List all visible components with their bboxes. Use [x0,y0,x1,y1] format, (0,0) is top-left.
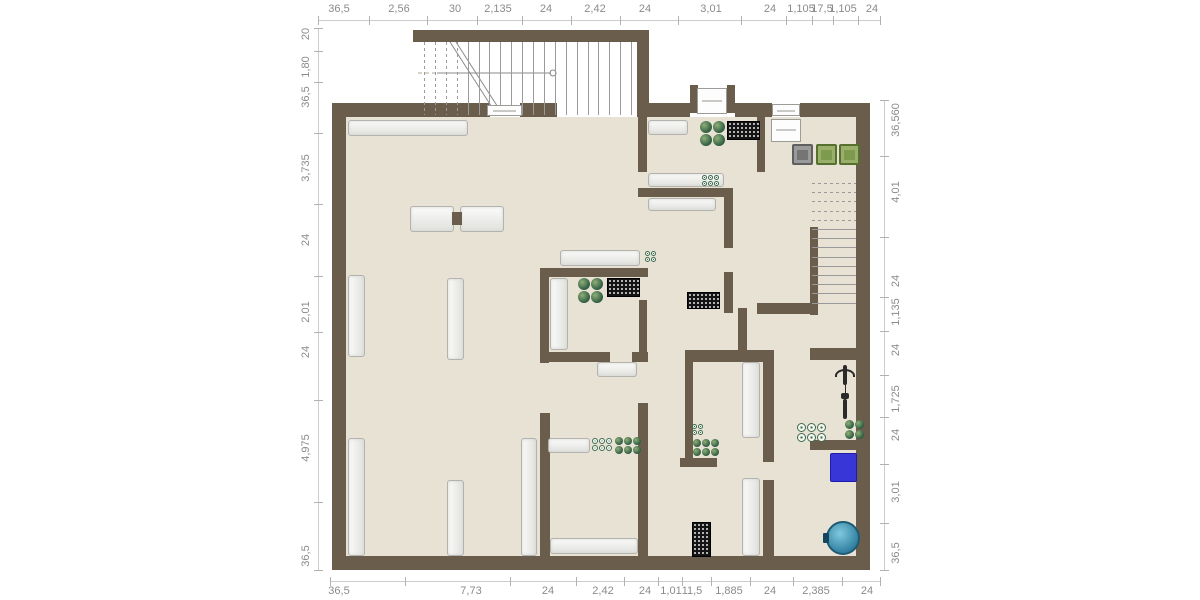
staircase-tread [522,42,523,115]
dimension-label: 24 [890,344,902,356]
staircase-tread [812,303,856,304]
dimension-label: 24 [542,585,554,597]
plant-icon [817,433,826,442]
dimension-tick [880,237,889,238]
dimension-label: 4,975 [300,434,312,462]
wall [724,272,733,313]
plant-icon [692,424,697,429]
door-fixture [487,105,522,116]
shelf-island-link [452,212,462,225]
plant-icon [592,445,598,451]
dimension-line [318,20,880,21]
chair-icon [816,144,837,165]
boiler-tank [830,453,857,482]
dimension-tick [369,16,370,25]
bicycle-handlebar [835,369,855,377]
dimension-tick [522,16,523,25]
plant-icon [633,437,641,445]
wall [540,268,648,277]
wall [413,30,649,42]
dimension-label: 1,01 [660,585,681,597]
plant-icon [700,134,712,146]
dimension-label: 1,725 [890,385,902,413]
dimension-label: 36,5 [300,86,312,107]
wall [332,103,490,117]
dimension-label: 24 [540,3,552,15]
staircase-tread [598,42,599,115]
plant-icon [708,181,713,186]
plant-icon [693,439,701,447]
dimension-label: 24 [300,346,312,358]
staircase-tread [588,42,589,115]
dimension-tick [314,82,323,83]
dimension-tick [314,502,323,503]
dimension-label: 24 [861,585,873,597]
dimension-label: 24 [764,585,776,597]
dimension-tick [880,577,881,586]
wall [632,352,648,362]
staircase-tread [566,42,567,115]
dimension-tick [858,16,859,25]
staircase-tread [812,275,856,276]
plant-icon [807,423,816,432]
dimension-tick [620,16,621,25]
plant-icon [592,438,598,444]
dimension-label: 24 [890,429,902,441]
dimension-label: 1,885 [715,585,743,597]
dimension-label: 2,01 [300,301,312,322]
plant-icon [713,134,725,146]
dimension-tick [624,577,625,586]
staircase-tread [577,42,578,115]
staircase-tread [446,42,447,115]
wall [332,103,346,570]
shelf-unit [348,438,365,556]
plant-icon [693,448,701,456]
water-barrel [826,521,860,555]
dimension-tick [880,16,881,25]
bicycle-seat [841,393,849,399]
plant-icon [615,446,623,454]
dimension-tick [750,577,751,586]
dimension-tick [318,16,319,25]
shelf-unit [348,120,468,136]
dimension-tick [880,375,889,376]
plant-icon [624,446,632,454]
dimension-label: 24 [639,585,651,597]
pallet-mat [687,292,720,309]
dimension-label: 24 [639,3,651,15]
dimension-label: 24 [300,234,312,246]
staircase-tread [457,42,458,115]
wall [638,117,647,172]
staircase-tread [620,42,621,115]
wall [810,348,856,360]
dimension-tick [880,570,889,571]
dimension-label: 2,385 [802,585,830,597]
door-fixture [772,104,800,116]
dimension-label: 36,5 [328,3,349,15]
wall [540,413,550,556]
plant-icon [713,121,725,133]
wall [757,303,818,314]
plant-icon [645,251,650,256]
plant-icon [651,251,656,256]
plant-icon [807,433,816,442]
staircase-tread [812,211,856,212]
dimension-label: 1,80 [300,56,312,77]
dimension-line [318,28,319,570]
shelf-unit [560,250,640,266]
staircase-tread [812,247,856,248]
shelf-unit [460,206,504,232]
plant-icon [591,291,603,303]
plant-icon [797,423,806,432]
plant-icon [606,445,612,451]
plant-icon [698,424,703,429]
dimension-label: 36,5 [300,545,312,566]
staircase-tread [812,229,856,230]
wall [856,103,870,570]
dimension-tick [314,332,323,333]
dimension-label: 2,42 [592,585,613,597]
door-fixture [697,88,727,114]
shelf-unit [410,206,454,232]
staircase-tread [812,266,856,267]
dimension-tick [314,28,323,29]
wall [548,352,610,362]
plant-icon [711,448,719,456]
wall [724,188,733,248]
plant-icon [817,423,826,432]
floorplan-canvas: Illustration@ImmoGrafik 36,52,56302,1352… [0,0,1200,600]
shelf-unit [447,480,464,556]
chair-icon [839,144,860,165]
plant-icon [714,175,719,180]
wall [680,458,717,467]
staircase-tread [631,42,632,115]
plant-icon [700,121,712,133]
staircase-tread [479,42,480,115]
dimension-tick [880,523,889,524]
dimension-tick [880,417,889,418]
wall [639,300,647,352]
wall [763,350,774,462]
plant-icon [714,181,719,186]
dimension-tick [314,400,323,401]
dimension-tick [314,204,323,205]
dimension-tick [510,577,511,586]
staircase-tread [435,42,436,115]
shelf-unit [550,538,638,554]
dimension-label: 20 [300,28,312,40]
plant-icon [599,438,605,444]
plant-icon [855,420,864,429]
shelf-unit [550,278,568,350]
staircase-tread [544,42,545,115]
dimension-tick [711,577,712,586]
dimension-label: 4,01 [890,181,902,202]
wall [685,362,693,460]
plant-icon [651,257,656,262]
staircase-tread [424,42,425,115]
dimension-tick [658,577,659,586]
dimension-tick [576,577,577,586]
staircase-tread [812,293,856,294]
dimension-line [330,581,880,582]
room-floor [346,117,856,556]
wall [685,350,774,362]
dimension-tick [812,16,813,25]
shelf-unit [348,275,365,357]
plant-icon [624,437,632,445]
wall [638,403,648,556]
shelf-unit [742,478,760,556]
dimension-line [884,100,885,570]
shelf-unit [548,438,590,453]
staircase-tread [468,42,469,115]
dimension-label: 36,560 [890,103,902,137]
plant-icon [708,175,713,180]
plant-icon [599,445,605,451]
dimension-tick [678,16,679,25]
dimension-label: 3,735 [300,154,312,182]
plant-icon [633,446,641,454]
shelf-unit [521,438,537,556]
dimension-label: 1,135 [890,298,902,326]
plant-icon [698,430,703,435]
plant-icon [702,439,710,447]
pallet-mat [692,522,711,557]
dimension-tick [793,577,794,586]
door-fixture [771,119,801,142]
plant-icon [606,438,612,444]
pallet-mat [607,278,640,297]
wall [540,268,549,363]
shelf-unit [648,173,724,187]
dimension-label: 24 [764,3,776,15]
plant-icon [591,278,603,290]
plant-icon [645,257,650,262]
dimension-tick [405,577,406,586]
dimension-tick [880,297,889,298]
staircase-tread [812,192,856,193]
dimension-tick [842,577,843,586]
dimension-tick [880,156,889,157]
dimension-tick [314,276,323,277]
dimension-tick [314,51,323,52]
chair-icon [792,144,813,165]
shelf-unit [597,362,637,377]
plant-icon [615,437,623,445]
dimension-label: 24 [866,3,878,15]
dimension-tick [880,331,889,332]
plant-icon [578,291,590,303]
dimension-tick [880,464,889,465]
wall [520,103,557,117]
dimension-label: 24 [890,275,902,287]
plant-icon [702,175,707,180]
pallet-mat [727,121,760,140]
dimension-tick [741,16,742,25]
wall [763,480,774,556]
dimension-label: 3,01 [700,3,721,15]
plant-icon [855,430,864,439]
plant-icon [797,433,806,442]
dimension-label: 2,42 [584,3,605,15]
dimension-tick [314,133,323,134]
dimension-tick [427,16,428,25]
staircase-tread [555,42,556,115]
plant-icon [692,430,697,435]
dimension-tick [571,16,572,25]
plant-icon [711,439,719,447]
staircase-tread [812,238,856,239]
wall [738,308,747,354]
shelf-unit [648,198,716,211]
dimension-label: 2,56 [388,3,409,15]
shelf-unit [447,278,464,360]
dimension-tick [314,570,323,571]
wall [800,103,856,117]
dimension-tick [786,16,787,25]
water-barrel-tap [823,533,829,543]
shelf-unit [648,120,688,135]
shelf-unit [742,362,760,438]
wall [638,188,733,197]
staircase-tread [812,220,856,221]
wall [810,440,856,450]
plant-icon [845,430,854,439]
wall [727,85,735,113]
dimension-label: 3,01 [890,481,902,502]
staircase-tread [812,284,856,285]
staircase-tread [812,183,856,184]
plant-icon [578,278,590,290]
plant-icon [845,420,854,429]
dimension-label: 7,73 [460,585,481,597]
dimension-tick [477,16,478,25]
dimension-label: 36,5 [890,542,902,563]
staircase-tread [812,257,856,258]
dimension-label: 30 [449,3,461,15]
dimension-tick [833,16,834,25]
plant-icon [702,448,710,456]
dimension-label: 36,5 [328,585,349,597]
wall [332,556,870,570]
dimension-label: 2,135 [484,3,512,15]
plant-icon [702,181,707,186]
wall [735,103,772,117]
dimension-label: 1,105 [829,3,857,15]
staircase-tread [812,201,856,202]
dimension-label: 11,5 [682,585,703,597]
staircase-tread [533,42,534,115]
dimension-tick [880,100,889,101]
wall [637,42,649,117]
staircase-tread [609,42,610,115]
